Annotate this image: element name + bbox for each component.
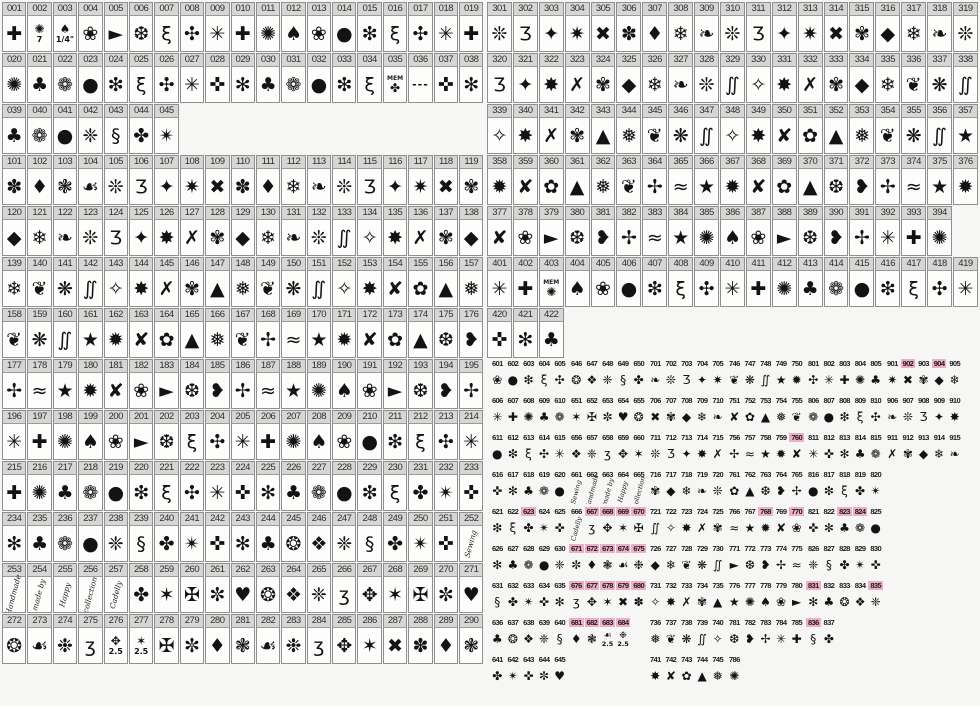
stitch-number: 243 [232,513,254,526]
stitch-cell: 224✜ [231,461,255,511]
stitch-glyph-icon: ✦ [932,405,947,430]
stitch-glyph-icon: ❦ [789,405,804,430]
stitch-number: 419 [954,258,977,271]
stitch-glyph-icon: ❊ [954,16,977,51]
stitch-cell: 628❁ [521,544,536,578]
stitch-cell: 173✿ [383,308,407,358]
stitch-glyph-icon: ≈ [902,169,925,204]
stitch-number: 409 [695,258,718,271]
stitch-cell: 200❀ [104,410,128,460]
stitch-number: 416 [876,258,899,271]
stitch-number: 602 [506,359,521,368]
stitch-glyph-icon: ≈ [282,322,304,357]
stitch-cell: 186✢ [231,359,255,409]
stitch-glyph-icon: ξ [358,67,380,102]
stitch-glyph-icon: ❇ [105,67,127,102]
stitch-number: 764 [774,470,789,479]
stitch-cell: 775≈ [789,544,804,578]
stitch-glyph-icon: ✖ [901,368,916,393]
left-stitch-grid: 001✚002✺7003♠1/4"004❀005►006❆007ξ008✣009… [2,2,483,664]
stitch-number: 753 [758,396,773,405]
stitch-number: 767 [743,507,758,516]
stitch-glyph-icon: ❆ [435,322,457,357]
stitch-cell: 142∬ [78,257,102,307]
stitch-number: 618 [521,470,536,479]
stitch-number: 316 [876,3,899,16]
stitch-number: 211 [384,411,406,424]
stitch-glyph-icon: ✠ [155,628,177,663]
stitch-number: 726 [648,544,663,553]
stitch-glyph-icon: ❅ [460,271,482,306]
stitch-number: 334 [850,54,873,67]
stitch-number: 154 [384,258,406,271]
stitch-glyph-icon: ❖ [569,442,584,467]
stitch-glyph-icon: ❇ [521,368,536,393]
stitch-cell: 115Ʒ [357,155,381,205]
stitch-number: 913 [916,433,931,442]
stitch-glyph-icon: ❊ [901,405,916,430]
stitch-number: 230 [384,462,406,475]
stitch-glyph-icon: ► [540,220,563,255]
stitch-cell: 125✦ [129,206,153,256]
stitch-glyph-icon: ✤ [631,368,646,393]
stitch-number: 222 [181,462,203,475]
stitch-glyph-icon: ✤ [384,526,406,561]
stitch-number: 344 [617,105,640,118]
stitch-glyph-icon: ✳ [954,271,977,306]
stitch-number: 246 [308,513,330,526]
stitch-glyph-icon: ✽ [617,16,640,51]
stitch-number: 774 [774,544,789,553]
stitch-cell: 409✣ [694,257,719,307]
stitch-number: 129 [232,207,254,220]
stitch-glyph-icon: ❇ [490,516,505,541]
stitch-glyph-icon: ♠ [758,590,773,615]
stitch-number: 768 [758,507,773,516]
stitch-glyph-icon: ✖ [435,169,457,204]
stitch-cell: 205✳ [231,410,255,460]
stitch-number: 375 [928,156,951,169]
stitch-cell: 367✹ [720,155,745,205]
stitch-cell: 143✧ [104,257,128,307]
stitch-cell: 683☙2.5 [600,618,615,652]
stitch-number: 622 [506,507,521,516]
stitch-cell: 611● [490,433,505,467]
stitch-number: 630 [552,544,567,553]
stitch-glyph-icon: ❀ [774,590,789,615]
stitch-number: 384 [669,207,692,220]
stitch-cell: 362❅ [591,155,616,205]
stitch-number: 601 [490,359,505,368]
stitch-glyph-icon: ► [155,373,177,408]
stitch-glyph-icon: ◆ [916,442,931,467]
stitch-glyph-icon: ✤ [837,553,852,578]
stitch-cell: 212ξ [408,410,432,460]
stitch-glyph-icon: ❂ [837,590,852,615]
stitch-cell: 355❋ [901,104,926,154]
stitch-glyph-icon: ❂ [3,628,25,663]
stitch-number: 270 [435,564,457,577]
stitch-number: 779 [774,581,789,590]
stitch-group: 771►772❆773❥774✢775≈ [727,544,806,578]
stitch-cell: 220❇ [129,461,153,511]
stitch-cell: 705✷ [710,359,725,393]
stitch-glyph-icon: ❋ [669,118,692,153]
stitch-row: 120◆121❄122❧123❊124Ʒ125✦126✸127✗128✾129◆… [2,206,483,256]
stitch-glyph-icon: ❊ [79,220,101,255]
stitch-number: 315 [850,3,873,16]
stitch-number: 192 [384,360,406,373]
stitch-glyph-icon: ✸ [384,220,406,255]
stitch-glyph-icon: ✾ [825,67,848,102]
stitch-group: 661Sewing662Handmade663made by664Happy66… [569,470,648,504]
stitch-glyph-icon: ❖ [853,590,868,615]
stitch-cell: 177✢ [2,359,26,409]
stitch-cell: 415● [849,257,874,307]
stitch-cell: 783✢ [758,618,773,652]
stitch-glyph-icon: ♣ [490,627,505,652]
stitch-glyph-icon: ✺ [853,368,868,393]
stitch-cell: 168✢ [256,308,280,358]
stitch-number: 371 [825,156,848,169]
stitch-cell: 386♠ [720,206,745,256]
stitch-number: 390 [825,207,848,220]
stitch-number: 610 [552,396,567,405]
stitch-glyph-icon: ♣ [257,67,279,102]
stitch-glyph-icon: ► [105,16,127,51]
stitch-glyph-icon: ✜ [490,479,505,504]
stitch-cell: 247❈ [332,512,356,562]
stitch-glyph-icon: ≈ [727,516,742,541]
stitch-glyph-icon: ✥ [358,577,380,612]
stitch-cell: 235♣ [27,512,51,562]
stitch-cell: 004❀ [78,2,102,52]
stitch-glyph-icon: ❧ [54,220,76,255]
stitch-number: 218 [79,462,101,475]
stitch-number: 153 [358,258,380,271]
stitch-number: 173 [384,309,406,322]
stitch-number: 817 [822,470,837,479]
stitch-number: 123 [79,207,101,220]
stitch-glyph-icon: ∬ [954,67,977,102]
stitch-glyph-icon: ❈ [308,577,330,612]
stitch-cell: 711❊ [648,433,663,467]
stitch-number: 765 [789,470,804,479]
stitch-glyph-icon: ✼ [181,628,203,663]
stitch-number: 213 [435,411,457,424]
stitch-number: 337 [928,54,951,67]
stitch-cell: 324✾ [591,53,616,103]
stitch-row: 020✺021♣022❁023●024❇025ξ026✣027✳028✜029✻… [2,53,483,103]
stitch-cell: 040❁ [27,104,51,154]
stitch-cell: 737❦ [664,618,679,652]
stitch-number: 240 [155,513,177,526]
stitch-number: 150 [282,258,304,271]
stitch-number: 174 [409,309,431,322]
stitch-number: 271 [460,564,482,577]
stitch-number: 349 [747,105,770,118]
stitch-group: 781❆782❥783✢784✳785✚ [727,618,806,652]
stitch-glyph-icon: ♣ [521,479,536,504]
stitch-number: 649 [616,359,631,368]
stitch-group [885,507,964,541]
stitch-number: 674 [616,544,631,553]
stitch-glyph-icon: --- [409,67,431,102]
stitch-glyph-icon: collection [79,577,101,612]
stitch-number: 219 [105,462,127,475]
stitch-cell: 039♣ [2,104,26,154]
stitch-glyph-icon: ❇ [358,475,380,510]
stitch-cell: 832♣ [822,581,837,615]
stitch-row: 139❄140❦141❋142∬143✧144✸145✗146✾147▲148❅… [2,257,483,307]
stitch-cell: 811✳ [806,433,821,467]
stitch-cell: 026✣ [154,53,178,103]
stitch-glyph-icon: ξ [384,16,406,51]
stitch-group: 666Cadelly667ʒ668✥669✶670✠ [569,507,648,541]
stitch-glyph-icon: ❂ [631,405,646,430]
stitch-glyph-icon: ✜ [460,475,482,510]
stitch-glyph-icon: ♠ [566,271,589,306]
stitch-cell: 133∬ [332,206,356,256]
stitch-cell: 037✜ [434,53,458,103]
stitch-cell: 817❇ [822,470,837,504]
stitch-number: 008 [181,3,203,16]
stitch-cell: 017✣ [408,2,432,52]
stitch-glyph-icon: ʒ [585,516,600,541]
stitch-number: 667 [585,507,600,516]
stitch-glyph-icon: ✜ [435,526,457,561]
stitch-glyph-icon: ● [79,67,101,102]
stitch-cell: 123❊ [78,206,102,256]
stitch-glyph-icon: ✺ [257,16,279,51]
stitch-cell: 279✼ [180,614,204,664]
stitch-cell: 728❦ [679,544,694,578]
stitch-number: 286 [358,615,380,628]
stitch-cell: 045✴ [154,104,178,154]
stitch-cell: 639❈ [537,618,552,652]
stitch-number: 367 [721,156,744,169]
stitch-cell: 307♦ [642,2,667,52]
stitch-glyph-icon: § [616,368,631,393]
stitch-number: 404 [566,258,589,271]
stitch-number: 232 [435,462,457,475]
stitch-number: 373 [876,156,899,169]
stitch-cell: 669✶ [616,507,631,541]
stitch-cell: 752✿ [743,396,758,430]
stitch-number: 143 [105,258,127,271]
stitch-number: 382 [617,207,640,220]
stitch-cell: 745❅ [710,655,725,689]
stitch-glyph-icon: ✶ [600,590,615,615]
stitch-number: 148 [232,258,254,271]
stitch-glyph-icon: ✚ [460,16,482,51]
stitch-glyph-icon: ❋ [902,118,925,153]
stitch-number: 208 [308,411,330,424]
stitch-cell: 139❄ [2,257,26,307]
stitch-glyph-icon: ◆ [850,67,873,102]
stitch-glyph-icon: ∬ [928,118,951,153]
stitch-glyph-icon: ✻ [232,526,254,561]
stitch-cell: 266ʒ [332,563,356,613]
stitch-cell: 662Handmade [585,470,600,504]
stitch-cell: 903✾ [916,359,931,393]
stitch-cell: 370▲ [798,155,823,205]
stitch-cell: 765✢ [789,470,804,504]
stitch-number: 915 [947,433,962,442]
stitch-cell: 772❆ [743,544,758,578]
stitch-cell: 284ʒ [307,614,331,664]
stitch-cell: 763❆ [758,470,773,504]
stitch-cell: 131❧ [281,206,305,256]
stitch-number: 040 [28,105,50,118]
stitch-glyph-icon: ✗ [885,442,900,467]
stitch-glyph-icon: ★ [727,590,742,615]
stitch-cell: 267✥ [357,563,381,613]
stitch-glyph-icon: ≈ [669,169,692,204]
stitch-cell: 314✖ [824,2,849,52]
stitch-cell: 203ξ [180,410,204,460]
stitch-glyph-icon: ✠ [631,516,646,541]
stitch-number: 770 [789,507,804,516]
stitch-cell: 679✖ [616,581,631,615]
stitch-group [806,655,885,689]
stitch-cell: 319❊ [953,2,978,52]
stitch-number: 196 [3,411,25,424]
stitch-cell: 654♥ [616,396,631,430]
stitch-glyph-icon: ✺ [521,405,536,430]
stitch-cell: 834❖ [853,581,868,615]
stitch-cell: 645♥ [552,655,567,689]
stitch-glyph-icon: ❧ [710,405,725,430]
stitch-glyph-icon: ❥ [758,553,773,578]
stitch-cell: 816● [806,470,821,504]
stitch-group: 681♦682❃683☙2.5684❉2.5 [569,618,648,652]
stitch-number: 710 [710,396,725,405]
stitch-cell: 706✖ [648,396,663,430]
stitch-glyph-icon: ✴ [853,553,868,578]
stitch-glyph-icon: ❁ [28,118,50,153]
stitch-cell: 240✤ [154,512,178,562]
stitch-glyph-icon: ❅ [850,118,873,153]
stitch-cell: 617✻ [506,470,521,504]
stitch-glyph-icon: ❖ [282,577,304,612]
stitch-cell: 310❊ [720,2,745,52]
stitch-glyph-icon: ✘ [384,271,406,306]
stitch-cell: 670✠ [631,507,646,541]
stitch-number: 658 [600,433,615,442]
stitch-cell: 633✴ [521,581,536,615]
stitch-cell: 643✜ [521,655,536,689]
stitch-cell: 339✧ [487,104,512,154]
stitch-number: 725 [710,507,725,516]
stitch-cell: 109✖ [205,155,229,205]
stitch-cell: 332✗ [798,53,823,103]
stitch-number: 205 [232,411,254,424]
stitch-number: 313 [799,3,822,16]
stitch-number: 233 [460,462,482,475]
stitch-glyph-icon: Sewing [569,479,584,504]
stitch-glyph-icon: ❄ [257,220,279,255]
stitch-number: 322 [540,54,563,67]
stitch-glyph-icon: ❊ [664,368,679,393]
stitch-number: 704 [695,359,710,368]
stitch-number: 312 [773,3,796,16]
stitch-cell: 308❄ [668,2,693,52]
stitch-number: 772 [743,544,758,553]
stitch-glyph-icon: ✴ [435,475,457,510]
stitch-number: 273 [28,615,50,628]
stitch-glyph-icon: ✴ [409,526,431,561]
stitch-glyph-icon: ✶ [631,442,646,467]
stitch-glyph-icon: ✸ [695,442,710,467]
stitch-cell: 730∬ [710,544,725,578]
stitch-number: 010 [232,3,254,16]
stitch-glyph-icon: ✣ [928,271,951,306]
stitch-glyph-icon: ★ [774,368,789,393]
stitch-cell: 002✺7 [27,2,51,52]
stitch-number: 737 [664,618,679,627]
stitch-glyph-icon: ◆ [232,220,254,255]
stitch-cell: 663made by [600,470,615,504]
stitch-glyph-icon: ❥ [206,373,228,408]
stitch-number: 319 [954,3,977,16]
stitch-cell: 731✧ [648,581,663,615]
stitch-number: 809 [853,396,868,405]
stitch-number: 417 [902,258,925,271]
stitch-glyph-icon: Ʒ [916,405,931,430]
stitch-cell: 118✖ [434,155,458,205]
stitch-glyph-icon: ✾ [850,16,873,51]
stitch-number: 629 [537,544,552,553]
stitch-number: 671 [569,544,584,553]
stitch-glyph-icon: ▲ [409,322,431,357]
stitch-number: 237 [79,513,101,526]
stitch-cell: 742✘ [664,655,679,689]
stitch-glyph-icon: ✳ [552,442,567,467]
stitch-glyph-icon: ❈ [585,442,600,467]
stitch-cell: 382✢ [616,206,641,256]
stitch-glyph-icon: ʒ [569,590,584,615]
stitch-cell: 254made by [27,563,51,613]
stitch-glyph-icon: ✽ [232,169,254,204]
stitch-glyph-icon: ❥ [460,322,482,357]
stitch-glyph-icon: MEM✺ [540,271,563,306]
stitch-glyph-icon: Ʒ [664,442,679,467]
stitch-number: 653 [600,396,615,405]
stitch-cell: 126✸ [154,206,178,256]
stitch-glyph-icon: ✽ [409,628,431,663]
stitch-glyph-icon: ✸ [747,118,770,153]
stitch-cell: 406● [616,257,641,307]
stitch-cell: 734✾ [695,581,710,615]
stitch-number: 231 [409,462,431,475]
stitch-number: 039 [3,105,25,118]
stitch-cell: 225✻ [256,461,280,511]
stitch-number: 139 [3,258,25,271]
stitch-group [885,544,964,578]
stitch-cell: 619❁ [537,470,552,504]
stitch-number: 735 [710,581,725,590]
stitch-glyph-icon: ♥ [460,577,482,612]
stitch-number: 625 [552,507,567,516]
stitch-glyph-icon: ✸ [514,118,537,153]
stitch-cell: 148❅ [231,257,255,307]
stitch-number: 612 [506,433,521,442]
stitch-cell: 357★ [953,104,978,154]
stitch-cell: 011✺ [256,2,280,52]
stitch-group: 631§632✤633✴634✜635✻ [490,581,569,615]
stitch-number: 207 [282,411,304,424]
